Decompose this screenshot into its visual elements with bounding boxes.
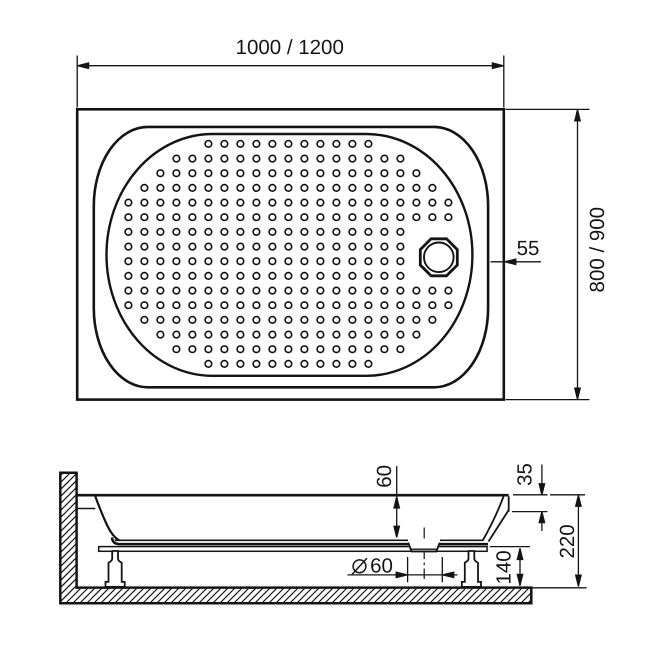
- svg-text:35: 35: [514, 463, 537, 486]
- svg-text:55: 55: [517, 237, 540, 260]
- svg-text:220: 220: [556, 524, 579, 558]
- svg-text:60: 60: [370, 555, 393, 578]
- svg-text:140: 140: [493, 550, 516, 584]
- svg-text:1000 / 1200: 1000 / 1200: [236, 36, 344, 59]
- svg-text:60: 60: [373, 465, 396, 488]
- svg-text:800 / 900: 800 / 900: [586, 207, 609, 293]
